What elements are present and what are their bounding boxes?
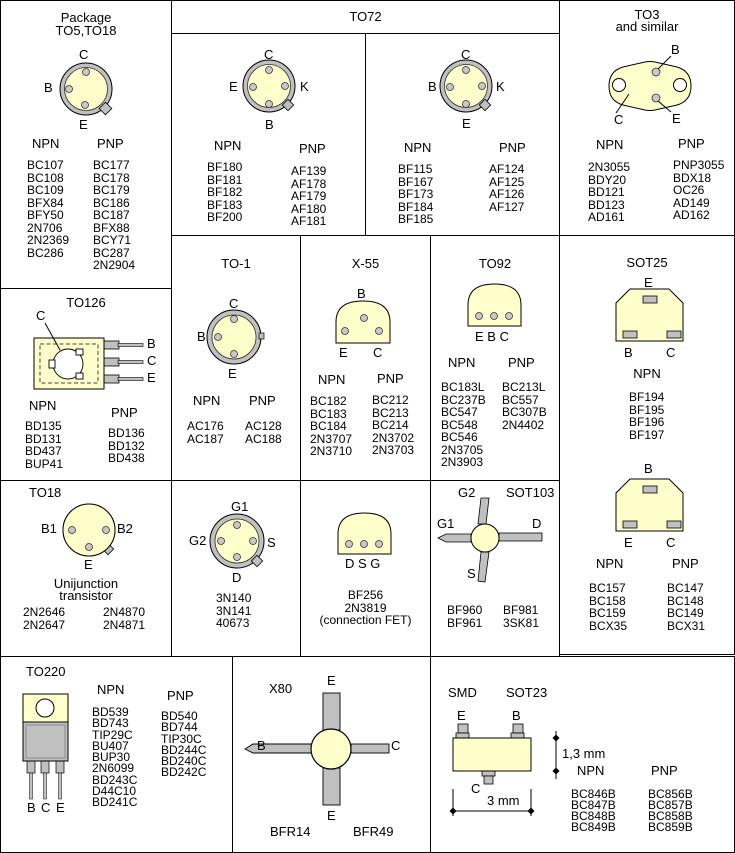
- to126-pnp-list: BD136BD132BD438: [108, 427, 145, 465]
- to3-pnp-list: PNP3055BDX18OC26AD149AD162: [673, 159, 724, 222]
- part-number: BD241C: [92, 797, 137, 808]
- part-number: BC147: [667, 582, 705, 595]
- part-number: BC179: [93, 184, 135, 197]
- part-number: BC157: [589, 582, 627, 595]
- to126-title: TO126: [1, 296, 171, 309]
- sot23-width-dimension: 3 mm: [487, 794, 520, 807]
- x55-pnp-list: BC212BC213BC2142N37022N3703: [372, 394, 414, 457]
- part-number: BC159: [589, 607, 627, 620]
- sot23-npn-header: NPN: [577, 764, 604, 777]
- x80-pin-b-label: B: [257, 739, 266, 752]
- to5-pnp-list: BC177BC178BC179BC186BC187BFX88BCY71BC287…: [93, 159, 135, 272]
- part-number: 2N4870: [103, 606, 145, 619]
- part-number: BF194: [629, 391, 664, 404]
- sot25-bottom-pin-b-label: B: [644, 462, 653, 475]
- sot25-bottom-pin-e-label: E: [624, 536, 633, 549]
- to5-pin-b-label: B: [44, 81, 53, 94]
- cell-sot23: SMD SOT23 E B C 1,3 mm 3 mm NPN PNP BC84…: [430, 656, 735, 853]
- to3-pnp-header: PNP: [678, 137, 705, 150]
- part-number: AF181: [291, 215, 326, 228]
- to5-pnp-header: PNP: [97, 137, 124, 150]
- to1-npn-list: AC176AC187: [187, 420, 224, 445]
- sot103-package-drawing: [431, 481, 559, 656]
- to126-npn-header: NPN: [29, 399, 56, 412]
- to126-pin-b-label: B: [147, 337, 156, 350]
- part-number: 2N2904: [93, 259, 135, 272]
- to72-left-package-drawing: [172, 34, 365, 235]
- sot25-package-drawings: [560, 236, 734, 654]
- to18-col1-list: 2N26462N2647: [23, 606, 65, 631]
- x55-npn-header: NPN: [318, 373, 345, 386]
- cell-to126: TO126 C B C E NPN PNP BD135BD131BD437BUP…: [0, 288, 172, 481]
- x80-part1-label: BFR14: [270, 825, 310, 838]
- part-number: BF200: [207, 211, 242, 224]
- part-number: BCX31: [667, 620, 705, 633]
- x80-pin-c-label: C: [391, 739, 400, 752]
- to72r-pin-c-label: C: [461, 48, 470, 61]
- to72-title: TO72: [172, 10, 559, 23]
- sot25-top-pin-b-label: B: [624, 346, 633, 359]
- to72l-pin-c-label: C: [264, 48, 273, 61]
- to220-title: TO220: [26, 665, 66, 678]
- to220-npn-list: BD539BD743TIP29CBU407BUP302N6099BD243CD4…: [92, 707, 137, 809]
- to72r-pnp-header: PNP: [499, 141, 526, 154]
- to18-pin-b1-label: B1: [41, 522, 57, 535]
- x55-pin-b-label: B: [357, 287, 366, 300]
- part-number: BC307B: [502, 406, 547, 419]
- fet-pins-label: D S G: [345, 557, 380, 570]
- sot103-pin-s-label: S: [467, 567, 476, 580]
- to5-pin-c-label: C: [79, 48, 88, 61]
- to18-subtitle-line2: transistor: [1, 589, 171, 602]
- part-number: BF961: [447, 617, 482, 630]
- part-number: BC182: [310, 395, 352, 408]
- part-number: BC109: [27, 184, 69, 197]
- part-number: 2N2646: [23, 606, 65, 619]
- part-number: BD438: [108, 452, 145, 465]
- part-number: BC849B: [571, 822, 616, 833]
- x80-title: X80: [269, 682, 292, 695]
- part-number: AC187: [187, 433, 224, 446]
- part-number: BC213L: [502, 381, 547, 394]
- part-number: BC187: [93, 209, 135, 222]
- to92-pnp-header: PNP: [508, 356, 535, 369]
- sot23-pnp-list: BC856BBC857BBC858BBC859B: [648, 789, 693, 833]
- part-number: AF179: [291, 190, 326, 203]
- cell-fet: D S G BF2562N3819(connection FET): [300, 480, 431, 657]
- x55-pin-e-label: E: [339, 346, 348, 359]
- part-number: 2N2647: [23, 619, 65, 632]
- part-number: BF981: [503, 604, 539, 617]
- part-number: BC149: [667, 607, 705, 620]
- to72l-npn-header: NPN: [214, 139, 241, 152]
- to126-npn-list: BD135BD131BD437BUP41: [25, 420, 63, 470]
- sot23-pnp-header: PNP: [651, 764, 678, 777]
- cell-to220: TO220 B C E NPN PNP BD539BD743TIP29CBU40…: [0, 656, 233, 853]
- cell-to5: Package TO5,TO18 C B E NPN PNP BC107BC10…: [0, 0, 172, 289]
- dualgate-parts-list: 3N1403N14140673: [216, 592, 251, 630]
- to72r-pin-k-label: K: [496, 80, 505, 93]
- to72r-pin-b-label: B: [428, 80, 437, 93]
- to72r-pin-e-label: E: [462, 117, 471, 130]
- cell-sot25: SOT25 E B C NPN BF194BF195BF196BF197 B E…: [559, 235, 735, 655]
- to220-pin-b-label: B: [27, 801, 36, 814]
- fet-parts-list: BF2562N3819(connection FET): [301, 589, 430, 627]
- to1-npn-header: NPN: [193, 394, 220, 407]
- to3-npn-list: 2N3055BDY20BD121BD123AD161: [588, 161, 630, 224]
- sot23-pin-c-label: C: [471, 782, 480, 795]
- sot23-height-dimension: 1,3 mm: [562, 747, 605, 760]
- part-number: 40673: [216, 617, 251, 630]
- sot103-col1-list: BF960BF961: [447, 604, 482, 629]
- sot25-title: SOT25: [560, 256, 734, 269]
- part-number: BC546: [441, 431, 486, 444]
- to1-title: TO-1: [172, 257, 300, 270]
- to220-pnp-header: PNP: [167, 689, 194, 702]
- part-number: BF115: [398, 163, 433, 176]
- part-number: BC177: [93, 159, 135, 172]
- cell-dualgate: G1 G2 S D 3N1403N14140673: [171, 480, 301, 657]
- sot23-pin-b-label: B: [512, 709, 521, 722]
- to220-pin-c-label: C: [41, 801, 50, 814]
- part-number: 2N4871: [103, 619, 145, 632]
- to3-pin-c-label: C: [614, 113, 623, 126]
- cell-to92: TO92 E B C NPN PNP BC183LBC237BBC547BC54…: [430, 235, 560, 481]
- part-number: BF182: [207, 186, 242, 199]
- part-number: BC859B: [648, 822, 693, 833]
- to5-npn-header: NPN: [32, 137, 59, 150]
- part-number: BF185: [398, 213, 433, 226]
- part-number: AD161: [588, 211, 630, 224]
- part-number: 2N2369: [27, 234, 69, 247]
- to72-right-package-drawing: [366, 34, 559, 235]
- sot25-top-npn-header: NPN: [560, 367, 734, 380]
- to126-pnp-header: PNP: [111, 406, 138, 419]
- sot23-title: SOT23: [506, 686, 547, 699]
- cell-x55: X-55 B E C NPN PNP BC182BC183BC1842N3707…: [300, 235, 431, 481]
- sot25-bottom-npn-list: BC157BC158BC159BCX35: [589, 582, 627, 632]
- sot25-top-pin-c-label: C: [666, 346, 675, 359]
- part-number: AC188: [245, 433, 282, 446]
- sot23-pin-e-label: E: [457, 709, 466, 722]
- part-number: (connection FET): [301, 614, 430, 627]
- to3-npn-header: NPN: [596, 138, 623, 151]
- dualgate-pin-s-label: S: [267, 536, 276, 549]
- to72r-npn-list: BF115BF167BF173BF184BF185: [398, 163, 433, 226]
- sot25-top-npn-list: BF194BF195BF196BF197: [629, 391, 664, 441]
- sot103-title: SOT103: [506, 486, 554, 499]
- to72l-pnp-header: PNP: [299, 142, 326, 155]
- part-number: BUP41: [25, 458, 63, 471]
- sot103-pin-g1-label: G1: [437, 517, 454, 530]
- part-number: AF126: [489, 188, 524, 201]
- to5-pin-e-label: E: [79, 118, 88, 131]
- part-number: BC212: [372, 394, 414, 407]
- to220-pin-e-label: E: [56, 801, 65, 814]
- to92-title: TO92: [431, 257, 559, 270]
- x55-pin-c-label: C: [373, 346, 382, 359]
- to72l-pin-k-label: K: [300, 80, 309, 93]
- part-number: BC547: [441, 406, 486, 419]
- part-number: BFY50: [27, 209, 69, 222]
- sot23-smd-label: SMD: [448, 686, 477, 699]
- cell-sot103: SOT103 G2 G1 D S BF960BF961 BF9813SK81: [430, 480, 560, 657]
- to18-pin-b2-label: B2: [117, 522, 133, 535]
- part-number: BF173: [398, 188, 433, 201]
- to1-pin-b-label: B: [197, 330, 206, 343]
- cell-x80: X80 E B C E BFR14 BFR49: [232, 656, 431, 853]
- part-number: 2N3903: [441, 456, 486, 469]
- part-number: BC183L: [441, 381, 486, 394]
- part-number: BD136: [108, 427, 145, 440]
- part-number: BF180: [207, 161, 242, 174]
- to5-title-line2: TO5,TO18: [1, 24, 171, 37]
- sot25-bottom-npn-header: NPN: [596, 557, 623, 570]
- to126-pin-e-label: E: [147, 371, 156, 384]
- sot25-top-pin-e-label: E: [644, 276, 653, 289]
- to126-pin-c-top-label: C: [36, 309, 45, 322]
- x55-title: X-55: [301, 257, 430, 270]
- dualgate-pin-g2-label: G2: [189, 534, 206, 547]
- x80-part2-label: BFR49: [353, 825, 393, 838]
- cell-to72-header: TO72: [171, 0, 560, 34]
- cell-to18-unijunction: TO18 B1 B2 E Unijunction transistor 2N26…: [0, 480, 172, 657]
- part-number: BF960: [447, 604, 482, 617]
- part-number: BCY71: [93, 234, 135, 247]
- to3-title-line2: and similar: [560, 20, 734, 33]
- to220-npn-header: NPN: [97, 683, 124, 696]
- to72l-pin-e-label: E: [229, 80, 238, 93]
- to18-col2-list: 2N48702N4871: [103, 606, 145, 631]
- to5-npn-list: BC107BC108BC109BFX84BFY502N7062N2369BC28…: [27, 159, 69, 259]
- transistor-package-chart: Package TO5,TO18 C B E NPN PNP BC107BC10…: [0, 0, 735, 853]
- to3-pin-b-label: B: [671, 43, 680, 56]
- x80-pin-e-bottom-label: E: [327, 809, 336, 822]
- part-number: 3N140: [216, 592, 251, 605]
- sot23-npn-list: BC846BBC847BBC848BBC849B: [571, 789, 616, 833]
- part-number: BC286: [27, 247, 69, 260]
- part-number: BF196: [629, 416, 664, 429]
- part-number: AF124: [489, 163, 524, 176]
- sot25-bottom-pin-c-label: C: [666, 536, 675, 549]
- to1-pnp-list: AC128AC188: [245, 420, 282, 445]
- part-number: PNP3055: [673, 159, 724, 172]
- part-number: BF256: [301, 589, 430, 602]
- x80-pin-e-top-label: E: [327, 674, 336, 687]
- part-number: AD162: [673, 209, 724, 222]
- to18-title: TO18: [29, 486, 61, 499]
- to92-npn-header: NPN: [448, 356, 475, 369]
- to92-pins-label: E B C: [475, 330, 509, 343]
- cell-to72-right: C B K E NPN PNP BF115BF167BF173BF184BF18…: [365, 33, 560, 236]
- part-number: AF127: [489, 201, 524, 214]
- part-number: 2N3055: [588, 161, 630, 174]
- to1-pin-c-label: C: [229, 297, 238, 310]
- part-number: BCX35: [589, 620, 627, 633]
- to18-pin-e-label: E: [84, 558, 93, 571]
- cell-to1: TO-1 C B E NPN PNP AC176AC187 AC128AC188: [171, 235, 301, 481]
- part-number: AC176: [187, 420, 224, 433]
- part-number: 2N4402: [502, 419, 547, 432]
- to72r-npn-header: NPN: [404, 141, 431, 154]
- part-number: BD437: [25, 445, 63, 458]
- sot103-pin-d-label: D: [532, 517, 541, 530]
- to126-pin-c-label: C: [147, 354, 156, 367]
- sot25-bottom-pnp-list: BC147BC148BC149BCX31: [667, 582, 705, 632]
- to72l-npn-list: BF180BF181BF182BF183BF200: [207, 161, 242, 224]
- to1-pin-e-label: E: [228, 367, 237, 380]
- part-number: BD135: [25, 420, 63, 433]
- sot103-col2-list: BF9813SK81: [503, 604, 539, 629]
- x55-pnp-header: PNP: [377, 372, 404, 385]
- sot25-bottom-pnp-header: PNP: [672, 557, 699, 570]
- to3-pin-e-label: E: [672, 112, 681, 125]
- to72l-pnp-list: AF139AF178AF179AF180AF181: [291, 165, 326, 228]
- to92-npn-list: BC183LBC237BBC547BC548BC5462N37052N3903: [441, 381, 486, 469]
- part-number: BC214: [372, 419, 414, 432]
- cell-to72-left: C E K B NPN PNP BF180BF181BF182BF183BF20…: [171, 33, 366, 236]
- part-number: BF197: [629, 429, 664, 442]
- part-number: AF139: [291, 165, 326, 178]
- part-number: BC107: [27, 159, 69, 172]
- part-number: OC26: [673, 184, 724, 197]
- part-number: BD242C: [161, 767, 206, 778]
- x55-npn-list: BC182BC183BC1842N37072N3710: [310, 395, 352, 458]
- sot103-pin-g2-label: G2: [458, 486, 475, 499]
- to1-pnp-header: PNP: [249, 394, 276, 407]
- to72r-pnp-list: AF124AF125AF126AF127: [489, 163, 524, 213]
- to220-pnp-list: BD540BD744TIP30CBD244CBD240CBD242C: [161, 711, 206, 779]
- part-number: BC184: [310, 420, 352, 433]
- cell-to3: TO3 and similar B E C NPN PNP 2N3055BDY2…: [559, 0, 735, 236]
- to72l-pin-b-label: B: [265, 118, 274, 131]
- part-number: AC128: [245, 420, 282, 433]
- dualgate-pin-g1-label: G1: [231, 500, 248, 513]
- part-number: 3SK81: [503, 617, 539, 630]
- part-number: BD121: [588, 186, 630, 199]
- dualgate-pin-d-label: D: [232, 571, 241, 584]
- part-number: 2N3710: [310, 445, 352, 458]
- part-number: 2N3703: [372, 444, 414, 457]
- to92-pnp-list: BC213LBC557BC307B2N4402: [502, 381, 547, 431]
